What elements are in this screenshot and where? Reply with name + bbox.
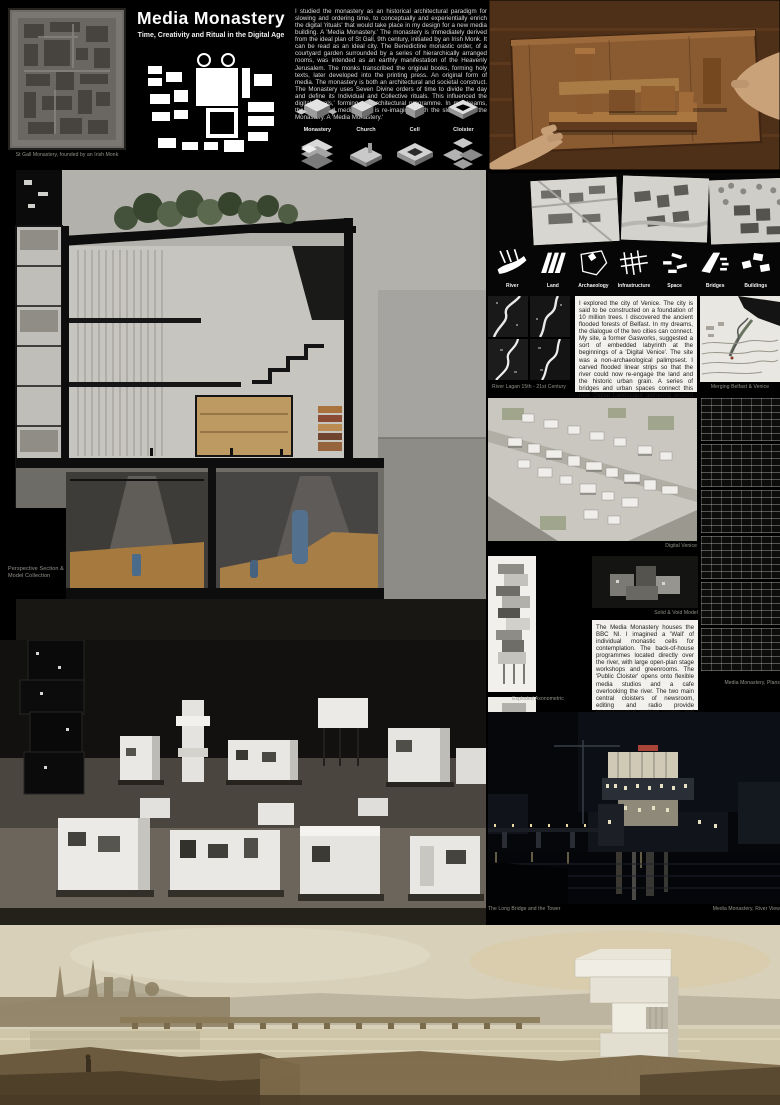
caption-long-bridge: The Long Bridge and the Tower — [488, 906, 638, 912]
map-tile-3 — [488, 339, 528, 380]
caption-solid-void: Solid & Void Model — [592, 610, 698, 616]
site-model-photo-2 — [621, 176, 709, 243]
plan-tile — [701, 398, 780, 441]
night-render — [488, 712, 780, 904]
map-tile-2 — [530, 296, 570, 337]
river-icon — [495, 247, 529, 277]
buildings-icon — [739, 247, 773, 277]
caption-st-gall: St Gall Monastery, founded by an Irish M… — [8, 152, 126, 158]
cloister-new-iso-icon — [441, 137, 485, 171]
turner-painting — [0, 925, 780, 1105]
river-lagan-maps — [488, 296, 570, 380]
plans-column — [701, 398, 780, 671]
digital-venice-aerial — [488, 398, 697, 541]
bridges-icon — [698, 247, 732, 277]
space-icon — [658, 247, 692, 277]
layer-space: Space — [654, 247, 695, 289]
layer-infrastructure: Infrastructure — [614, 247, 655, 289]
site-model-photo-1 — [530, 177, 619, 245]
plan-tile — [701, 582, 780, 625]
cell-new-iso-icon — [393, 137, 437, 171]
stone-model-photo — [8, 8, 126, 150]
monastery-new-iso-icon — [295, 137, 339, 171]
site-model-panel: River Land Archaeology — [488, 173, 780, 300]
layer-river: River — [492, 247, 533, 289]
perspective-section-drawing — [0, 170, 486, 640]
monastery-iso-icon — [295, 97, 339, 121]
page-subtitle: Time, Creativity and Ritual in the Digit… — [130, 32, 292, 39]
bbc-paragraph: The Media Monastery houses the BBC NI. I… — [592, 620, 698, 710]
merging-drawing — [700, 296, 780, 382]
page-title: Media Monastery — [130, 8, 292, 29]
caption-merging: Merging Belfast & Venice — [700, 384, 780, 390]
cell-iso-icon — [393, 97, 437, 121]
layer-archaeology: Archaeology — [573, 247, 614, 289]
church-new-iso-icon — [344, 137, 388, 171]
layer-bridges: Bridges — [695, 247, 736, 289]
plan-tile — [701, 490, 780, 533]
venice-paragraph: I explored the city of Venice. The city … — [575, 296, 697, 392]
infrastructure-icon — [617, 247, 651, 277]
map-tile-1 — [488, 296, 528, 337]
typology-church: Church — [342, 97, 391, 133]
caption-perspective-section: Perspective Section & Model Collection — [8, 566, 72, 580]
archaeology-icon — [576, 247, 610, 277]
typology-cell: Cell — [390, 97, 439, 133]
land-icon — [536, 247, 570, 277]
tower-collage-1 — [488, 556, 536, 692]
layer-land: Land — [533, 247, 574, 289]
typology-diagram: Monastery Church Cell — [293, 97, 488, 177]
title-block: Media Monastery Time, Creativity and Rit… — [130, 8, 292, 39]
st-gall-plan — [138, 44, 288, 166]
map-tile-4 — [530, 339, 570, 380]
cloister-iso-icon — [441, 97, 485, 121]
site-layer-icons: River Land Archaeology — [492, 247, 776, 289]
presentation-board: St Gall Monastery, founded by an Irish M… — [0, 0, 780, 1105]
typology-cloister: Cloister — [439, 97, 488, 133]
caption-river-lagan: River Lagan 15th - 21st Century — [488, 384, 570, 390]
black-tower-model — [20, 640, 84, 794]
church-iso-icon — [344, 97, 388, 121]
caption-digital-venice: Digital Venice — [488, 543, 697, 549]
plan-tile — [701, 536, 780, 579]
model-collection-photo — [0, 640, 486, 925]
site-model-photo-3 — [709, 178, 780, 245]
caption-river-view: Media Monastery, River View — [640, 906, 780, 912]
typology-monastery: Monastery — [293, 97, 342, 133]
plan-tile — [701, 444, 780, 487]
caption-plans: Media Monastery, Plans — [701, 680, 780, 686]
plan-tile — [701, 628, 780, 671]
solid-void-photo — [592, 556, 698, 608]
wood-model-photo — [489, 0, 780, 170]
layer-buildings: Buildings — [735, 247, 776, 289]
caption-exploded-axonometric: Exploded Axonometric — [488, 696, 588, 702]
